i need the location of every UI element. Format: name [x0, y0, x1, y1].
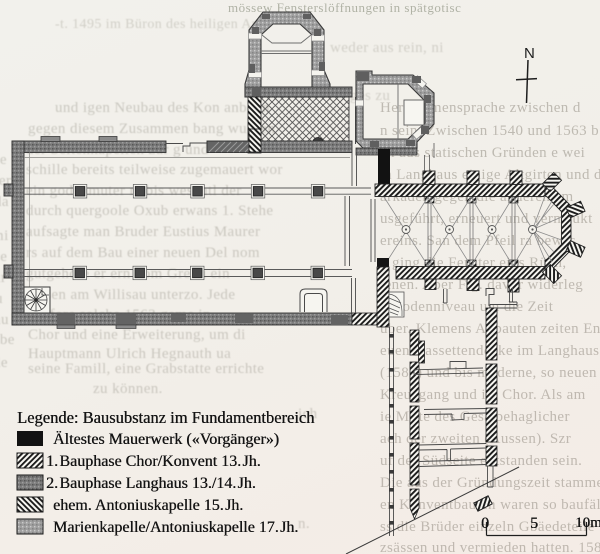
svg-text:N: N: [524, 45, 535, 62]
